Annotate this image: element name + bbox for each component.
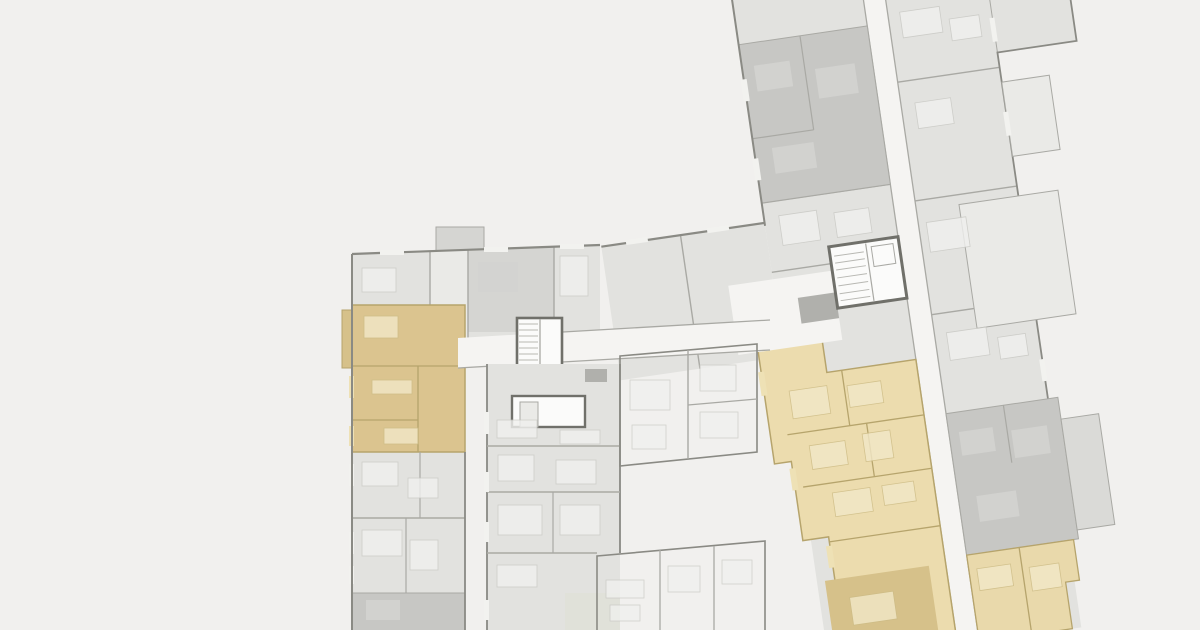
unit-northeast-muted[interactable] [739, 26, 891, 203]
furniture-mark [384, 428, 418, 444]
furniture-mark [946, 327, 990, 360]
furniture-mark [834, 208, 872, 238]
furniture-mark [362, 530, 402, 556]
furniture-mark [366, 600, 400, 620]
furniture-mark [998, 333, 1029, 359]
furniture-mark [632, 425, 666, 449]
furniture-mark [949, 15, 982, 41]
furniture-mark [850, 591, 898, 625]
furniture-mark [700, 365, 736, 391]
vestibule [798, 292, 839, 323]
balcony [1002, 75, 1060, 156]
furniture-mark [610, 605, 640, 621]
furniture-mark [815, 63, 859, 98]
furniture-mark [847, 381, 884, 408]
furniture-mark [560, 256, 588, 296]
furniture-mark [1029, 563, 1062, 591]
furniture-mark [900, 6, 943, 38]
furniture-mark [606, 580, 644, 598]
furniture-mark [364, 316, 398, 338]
furniture-mark [959, 427, 996, 456]
furniture-mark [789, 386, 831, 419]
furniture-mark [630, 380, 670, 410]
window-mark [484, 472, 489, 492]
furniture-mark [882, 481, 917, 505]
terrace [959, 190, 1076, 328]
furniture-mark [722, 560, 752, 584]
furniture-mark [498, 455, 534, 481]
furniture-mark [362, 268, 396, 292]
floor-plan-canvas [0, 0, 1200, 630]
window-mark [380, 250, 404, 255]
window-mark [484, 600, 489, 620]
furniture-mark [779, 210, 821, 245]
furniture-mark [362, 462, 398, 486]
furniture-mark [478, 262, 518, 292]
furniture-mark [560, 430, 600, 444]
furniture-mark [926, 217, 970, 252]
furniture-mark [977, 564, 1014, 591]
furniture-mark [754, 61, 793, 92]
stair-core-central [829, 237, 907, 308]
unit-west-bottom-muted[interactable] [352, 593, 465, 630]
furniture-mark [497, 565, 537, 587]
furniture-mark [862, 430, 894, 462]
window-mark [484, 522, 489, 542]
window-mark [484, 247, 508, 252]
furniture-mark [1011, 425, 1051, 458]
furniture-mark [410, 540, 438, 570]
furniture-mark [498, 505, 542, 535]
furniture-mark [832, 487, 873, 516]
furniture-mark [556, 460, 596, 484]
furniture-mark [408, 478, 438, 498]
furniture-mark [809, 441, 848, 470]
window-mark [560, 244, 584, 249]
furniture-mark [372, 380, 412, 394]
vestibule [585, 369, 607, 382]
furniture-mark [560, 505, 600, 535]
unit-eastcolumn-muted[interactable] [946, 397, 1078, 555]
unit-west-highlight[interactable] [342, 305, 465, 452]
furniture-mark [497, 420, 537, 438]
window-mark [484, 412, 489, 434]
furniture-mark [668, 566, 700, 592]
furniture-mark [700, 412, 738, 438]
furniture-mark [915, 98, 954, 129]
